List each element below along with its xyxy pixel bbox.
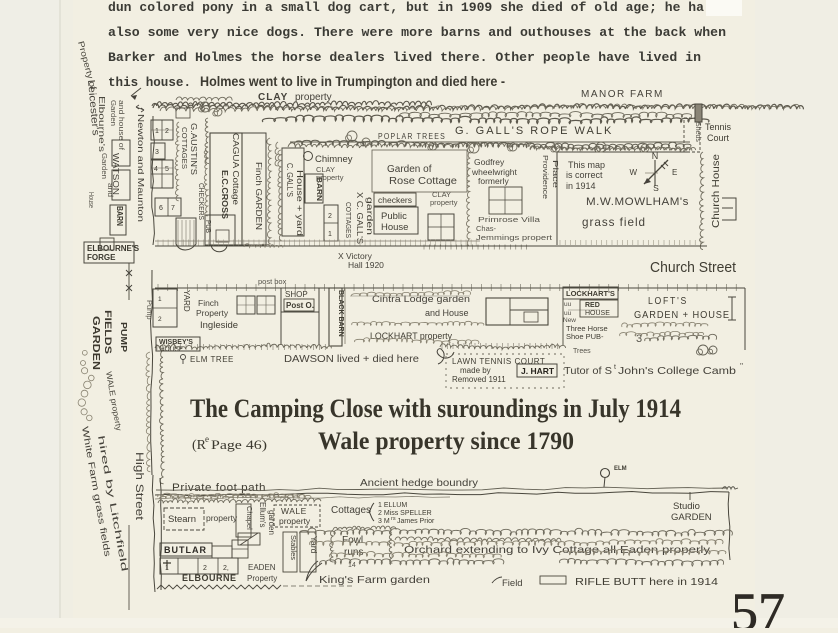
svg-text:John's College Camb: John's College Camb bbox=[618, 366, 737, 377]
svg-text:GARDEN: GARDEN bbox=[90, 316, 101, 370]
svg-text:Sheds: Sheds bbox=[694, 122, 701, 142]
svg-text:This map: This map bbox=[568, 160, 605, 170]
svg-text:in 1914: in 1914 bbox=[566, 181, 596, 191]
svg-text:property: property bbox=[430, 198, 458, 207]
svg-text:57: 57 bbox=[731, 582, 785, 628]
svg-text:3: 3 bbox=[155, 149, 159, 156]
svg-text:Garden: Garden bbox=[109, 100, 116, 126]
svg-text:rs: rs bbox=[391, 516, 396, 522]
svg-text:Stearn: Stearn bbox=[168, 514, 196, 525]
svg-text:Studio: Studio bbox=[673, 501, 700, 512]
svg-text:Place: Place bbox=[551, 160, 560, 188]
svg-text:RIFLE BUTT here in 1914: RIFLE BUTT here in 1914 bbox=[575, 577, 719, 588]
svg-text:Godfrey: Godfrey bbox=[474, 157, 505, 167]
svg-text:POPLAR TREES: POPLAR TREES bbox=[378, 131, 446, 141]
svg-text:N: N bbox=[652, 151, 659, 161]
svg-text:BLACK BARN: BLACK BARN bbox=[337, 290, 344, 337]
svg-text:Cintra Lodge garden: Cintra Lodge garden bbox=[372, 294, 470, 304]
svg-text:Chimney: Chimney bbox=[315, 154, 353, 165]
svg-text:High Street: High Street bbox=[133, 452, 145, 520]
svg-text:GARDEN + HOUSE: GARDEN + HOUSE bbox=[634, 310, 730, 321]
svg-text:4: 4 bbox=[154, 166, 158, 173]
svg-text:YARD: YARD bbox=[182, 290, 191, 312]
svg-text:X C. GALL'S: X C. GALL'S bbox=[355, 192, 364, 244]
svg-text:BUTLAR: BUTLAR bbox=[164, 545, 207, 555]
svg-text:New: New bbox=[563, 317, 576, 324]
svg-text:1: 1 bbox=[328, 231, 332, 238]
svg-text:Ellum's: Ellum's bbox=[258, 502, 267, 528]
svg-text:also some very nice dogs. The: also some very nice dogs. There were mor… bbox=[108, 25, 726, 40]
svg-text:Newton and Maunton: Newton and Maunton bbox=[136, 114, 146, 222]
svg-text:LOCKHART'S: LOCKHART'S bbox=[566, 289, 615, 298]
svg-text:ELM TREE: ELM TREE bbox=[190, 355, 234, 364]
svg-text:S: S bbox=[653, 183, 659, 193]
svg-text:formerly: formerly bbox=[478, 176, 509, 186]
svg-text:G. GALL'S ROPE WALK: G. GALL'S ROPE WALK bbox=[455, 125, 613, 137]
svg-text:J. HART: J. HART bbox=[521, 366, 555, 376]
svg-text:1 ELLUM: 1 ELLUM bbox=[378, 502, 407, 509]
svg-text:MANOR FARM: MANOR FARM bbox=[581, 89, 664, 100]
svg-text:ELM: ELM bbox=[614, 466, 627, 472]
svg-text:made by: made by bbox=[460, 366, 491, 375]
svg-text:E: E bbox=[672, 168, 677, 177]
svg-text:Removed 1911: Removed 1911 bbox=[452, 375, 506, 384]
svg-text:Property: Property bbox=[247, 574, 277, 583]
svg-text:G.AUSTIN'S: G.AUSTIN'S bbox=[189, 123, 198, 175]
svg-text:King's Farm garden: King's Farm garden bbox=[319, 574, 430, 586]
svg-text:HOUSE: HOUSE bbox=[585, 310, 610, 317]
svg-text:Court: Court bbox=[707, 133, 730, 143]
svg-text:t: t bbox=[614, 364, 616, 371]
svg-text:Property: Property bbox=[196, 308, 229, 318]
svg-text:and house of: and house of bbox=[117, 100, 124, 150]
svg-text:Field: Field bbox=[502, 578, 523, 589]
svg-text:DAWSON lived + died here: DAWSON lived + died here bbox=[284, 354, 419, 365]
svg-text:SHOP: SHOP bbox=[285, 290, 308, 299]
svg-text:Finch GARDEN: Finch GARDEN bbox=[254, 162, 264, 230]
svg-text:garden: garden bbox=[365, 197, 374, 235]
svg-text:2 Miss SPELLER: 2 Miss SPELLER bbox=[378, 510, 432, 517]
svg-text:property: property bbox=[316, 173, 344, 182]
svg-text:FIELDS: FIELDS bbox=[102, 310, 113, 354]
svg-text:HOUSE: HOUSE bbox=[160, 346, 184, 353]
svg-text:property: property bbox=[206, 513, 238, 523]
svg-text:dun colored pony in a small do: dun colored pony in a small dog cart, bu… bbox=[108, 0, 704, 15]
svg-text:ELBOURNE: ELBOURNE bbox=[182, 573, 237, 583]
svg-text:e: e bbox=[205, 434, 209, 444]
svg-text:E.C.CROSS: E.C.CROSS bbox=[220, 170, 230, 219]
svg-text:and House: and House bbox=[425, 308, 469, 318]
svg-text:James Prior: James Prior bbox=[397, 518, 435, 525]
svg-text:Hall 1920: Hall 1920 bbox=[348, 260, 384, 270]
svg-text:6: 6 bbox=[159, 205, 163, 212]
svg-text:Ingleside: Ingleside bbox=[200, 320, 238, 331]
svg-text:LAWN TENNIS COURT: LAWN TENNIS COURT bbox=[452, 357, 545, 366]
svg-text:The Camping Close with suround: The Camping Close with suroundings in Ju… bbox=[190, 393, 681, 423]
svg-text:C. GALL'S: C. GALL'S bbox=[285, 163, 294, 197]
svg-text:Elbourne's: Elbourne's bbox=[97, 96, 107, 152]
svg-text:Holmes went to live in Trumpin: Holmes went to live in Trumpington and d… bbox=[200, 74, 505, 89]
svg-text:EADEN: EADEN bbox=[248, 563, 276, 572]
svg-text:Providence: Providence bbox=[541, 155, 550, 199]
svg-text:uu: uu bbox=[564, 301, 572, 308]
svg-text:LOCKHART property: LOCKHART property bbox=[370, 331, 452, 342]
svg-text:Garden of: Garden of bbox=[387, 164, 432, 175]
svg-text:uu: uu bbox=[564, 310, 572, 317]
svg-text:Jemmings propert: Jemmings propert bbox=[476, 233, 553, 242]
svg-text:BARN: BARN bbox=[115, 206, 124, 226]
svg-text:House: House bbox=[87, 192, 94, 208]
svg-text:CHECKERS: CHECKERS bbox=[197, 183, 204, 220]
svg-text:Chapel: Chapel bbox=[245, 506, 254, 530]
svg-text:Page 46): Page 46) bbox=[211, 437, 267, 452]
svg-text:Orchard extending to Ivy Cotta: Orchard extending to Ivy Cottage all Ead… bbox=[404, 544, 711, 556]
svg-text:Chas-: Chas- bbox=[476, 224, 497, 233]
svg-text:1: 1 bbox=[158, 296, 162, 303]
svg-text:is correct: is correct bbox=[566, 170, 603, 180]
svg-text:COTTAGES: COTTAGES bbox=[344, 202, 351, 238]
svg-text:Public: Public bbox=[381, 211, 407, 222]
svg-text:CAGUA Cottage: CAGUA Cottage bbox=[231, 133, 241, 205]
svg-text:2,: 2, bbox=[223, 565, 229, 572]
svg-text:House + yard: House + yard bbox=[295, 170, 304, 236]
svg-text:PUMP: PUMP bbox=[119, 322, 129, 352]
svg-text:ELBOURNE'S: ELBOURNE'S bbox=[87, 244, 140, 253]
svg-text:garden: garden bbox=[267, 510, 276, 535]
svg-text:2: 2 bbox=[158, 316, 162, 323]
svg-text:Ancient hedge boundry: Ancient hedge boundry bbox=[360, 477, 479, 489]
svg-text:Finch: Finch bbox=[198, 298, 219, 308]
svg-text:1: 1 bbox=[155, 128, 159, 135]
svg-text:Trees: Trees bbox=[573, 348, 591, 355]
svg-text:House: House bbox=[381, 222, 408, 233]
svg-text:this house.: this house. bbox=[108, 75, 191, 90]
svg-text:Church House: Church House bbox=[710, 154, 722, 228]
svg-text:2: 2 bbox=[328, 213, 332, 220]
svg-text:3 M: 3 M bbox=[378, 518, 390, 525]
svg-text:Barker and Holmes the horse de: Barker and Holmes the horse dealers live… bbox=[108, 50, 701, 65]
svg-text:Shoe PUB-: Shoe PUB- bbox=[566, 332, 604, 341]
svg-text:grass field: grass field bbox=[582, 215, 646, 229]
svg-text:2: 2 bbox=[165, 128, 169, 135]
svg-text:GARDEN: GARDEN bbox=[671, 512, 712, 523]
svg-text:property: property bbox=[295, 92, 332, 103]
svg-text:Tutor of S: Tutor of S bbox=[564, 366, 612, 377]
svg-text:W: W bbox=[629, 168, 637, 177]
svg-text:WISBEY'S: WISBEY'S bbox=[159, 339, 193, 346]
svg-text:5: 5 bbox=[165, 166, 169, 173]
svg-text:Post O.: Post O. bbox=[286, 301, 314, 310]
svg-text:Private foot path: Private foot path bbox=[172, 482, 266, 494]
svg-text:LOFT'S: LOFT'S bbox=[648, 296, 688, 307]
svg-text:Wale property since 1790: Wale property since 1790 bbox=[318, 428, 574, 455]
svg-text:Cottages: Cottages bbox=[331, 505, 371, 516]
svg-text:RED: RED bbox=[585, 302, 600, 309]
svg-text:Tennis: Tennis bbox=[705, 122, 732, 132]
svg-text:'': '' bbox=[740, 362, 744, 371]
svg-text:Primrose Villa: Primrose Villa bbox=[478, 215, 541, 224]
svg-text:7: 7 bbox=[171, 205, 175, 212]
svg-text:Rose Cottage: Rose Cottage bbox=[389, 176, 457, 187]
svg-text:Garden: Garden bbox=[100, 153, 107, 179]
svg-text:post box: post box bbox=[258, 277, 287, 286]
svg-text:Church Street: Church Street bbox=[650, 259, 737, 276]
svg-text:checkers: checkers bbox=[378, 195, 412, 205]
svg-text:WALE: WALE bbox=[281, 506, 307, 516]
svg-text:Yard: Yard bbox=[309, 536, 319, 554]
svg-text:FORGE: FORGE bbox=[87, 253, 116, 262]
svg-text:COTTAGES: COTTAGES bbox=[180, 127, 189, 169]
svg-text:property: property bbox=[279, 516, 311, 526]
svg-text:M.W.MOWLHAM's: M.W.MOWLHAM's bbox=[586, 196, 689, 208]
svg-text:2: 2 bbox=[203, 565, 207, 572]
